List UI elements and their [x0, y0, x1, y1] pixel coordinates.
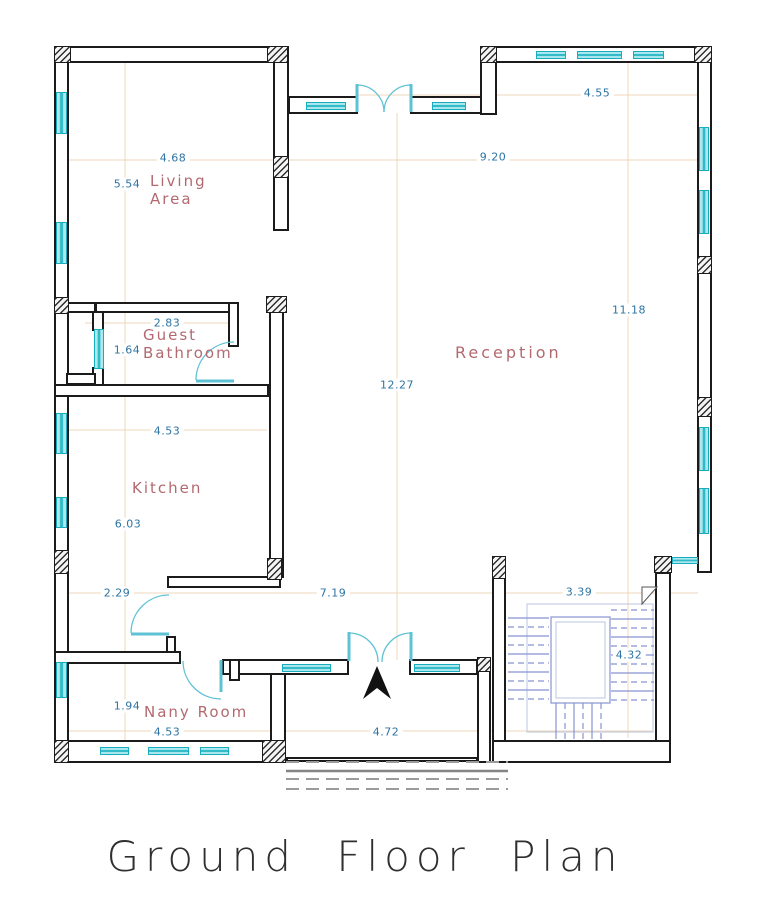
door-arc — [357, 85, 384, 112]
dimension-label: 9.20 — [477, 151, 510, 164]
room-label-kitchen: Kitchen — [132, 479, 202, 497]
column-hatch — [54, 740, 69, 763]
dimension-label: 4.55 — [581, 87, 614, 100]
window — [148, 747, 189, 755]
room-label-reception: Reception — [455, 343, 562, 362]
column-hatch — [694, 46, 712, 63]
column-hatch — [267, 46, 288, 63]
column-hatch — [273, 156, 289, 178]
room-label-nany: Nany Room — [144, 703, 248, 721]
door-arc — [131, 595, 169, 633]
window — [414, 664, 460, 672]
window — [282, 664, 331, 672]
symbols-layer — [0, 0, 772, 914]
construction-grid — [0, 0, 772, 914]
wall-kitchen-bottom — [167, 576, 281, 588]
dimension-label: 2.83 — [151, 317, 184, 330]
dimension-label: 4.32 — [613, 649, 646, 662]
window — [200, 747, 229, 755]
column-hatch — [266, 296, 287, 313]
dimension-label: 12.27 — [377, 379, 417, 392]
dimension-label: 6.03 — [112, 518, 145, 531]
floor-plan: Living Area Guest Bathroom Reception Kit… — [0, 0, 772, 914]
column-hatch — [697, 397, 712, 417]
wall-stair-right — [655, 572, 671, 763]
wall-living-top — [54, 46, 288, 63]
window — [536, 51, 566, 59]
wall-bath-col-a — [92, 311, 104, 331]
wall-porch-bottom-line — [286, 757, 478, 762]
wall-reception-bottom-stub — [229, 659, 240, 681]
window — [56, 497, 67, 528]
window — [432, 102, 466, 110]
window — [94, 329, 104, 369]
wall-stair-bottom — [492, 740, 671, 763]
wall-kitchen-top — [54, 384, 269, 397]
window — [699, 127, 709, 171]
door-arc — [384, 85, 411, 112]
window — [100, 747, 129, 755]
window — [699, 427, 709, 471]
staircase — [508, 587, 657, 739]
window — [699, 488, 709, 534]
dimension-label: 4.53 — [151, 425, 184, 438]
window — [56, 222, 67, 264]
column-hatch — [262, 740, 286, 763]
dimension-label: 2.29 — [101, 587, 134, 600]
wall-stair-left — [492, 556, 506, 763]
window-stair-opening — [672, 557, 698, 564]
window — [56, 413, 67, 454]
wall-porch-right — [477, 657, 491, 763]
dimension-label: 4.53 — [151, 726, 184, 739]
column-hatch — [492, 556, 506, 579]
column-hatch — [477, 657, 491, 672]
window — [56, 92, 67, 134]
wall-kitchen-right — [269, 296, 284, 578]
window — [577, 51, 622, 59]
dimension-label: 1.64 — [111, 344, 144, 357]
dimension-label: 4.72 — [370, 726, 403, 739]
dimension-label: 4.68 — [157, 152, 190, 165]
drawing-title: Ground Floor Plan — [95, 832, 635, 881]
wall-living-right — [273, 46, 289, 231]
north-arrow-icon — [363, 666, 391, 699]
column-hatch — [697, 256, 712, 274]
wall-bath-top — [95, 302, 239, 313]
door-arc — [183, 661, 221, 699]
wall-nany-top — [54, 651, 181, 664]
column-hatch — [480, 46, 497, 63]
window — [306, 102, 346, 110]
window — [633, 51, 664, 59]
dimension-label: 5.54 — [111, 178, 144, 191]
room-label-guest-bathroom: Guest Bathroom — [143, 326, 233, 362]
column-hatch — [54, 297, 69, 314]
room-label-living: Living Area — [150, 172, 207, 208]
column-hatch — [654, 556, 672, 573]
column-hatch — [267, 558, 282, 580]
dimension-label: 3.39 — [563, 586, 596, 599]
dimension-label: 7.19 — [317, 587, 350, 600]
door-arc — [382, 633, 411, 662]
window — [699, 190, 709, 234]
dimension-label: 11.18 — [609, 304, 649, 317]
dimension-label: 1.94 — [111, 700, 144, 713]
door-arc — [349, 633, 378, 662]
window — [56, 662, 67, 698]
column-hatch — [54, 46, 71, 63]
entry-steps — [286, 762, 508, 789]
column-hatch — [54, 550, 69, 574]
